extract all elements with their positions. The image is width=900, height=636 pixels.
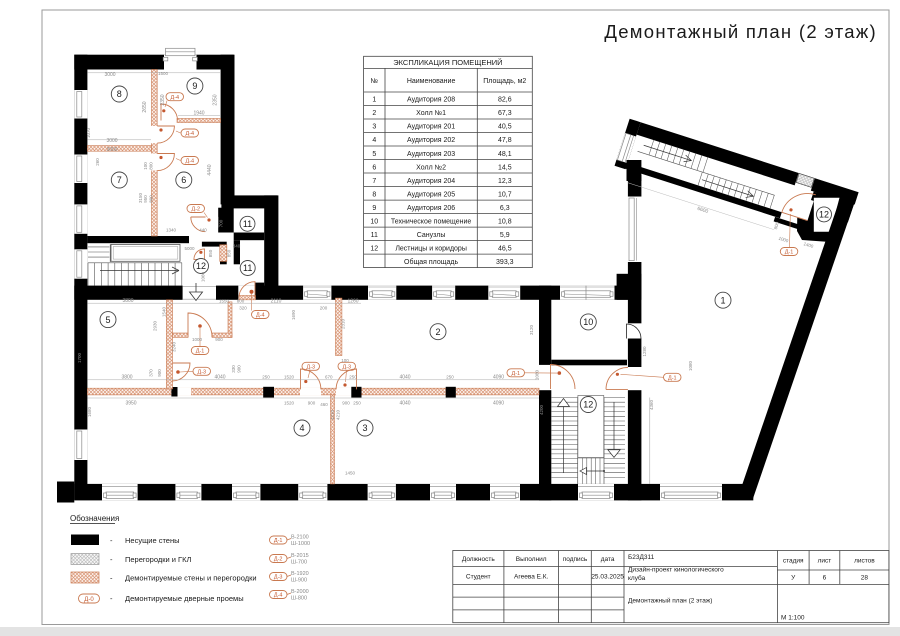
svg-text:250: 250	[446, 374, 454, 379]
svg-text:Наименование: Наименование	[407, 78, 456, 85]
svg-text:440: 440	[199, 228, 207, 233]
svg-text:М 1:100: М 1:100	[781, 615, 805, 622]
svg-text:12: 12	[819, 210, 829, 220]
svg-text:82,6: 82,6	[498, 97, 512, 104]
svg-text:2930: 2930	[153, 320, 158, 331]
svg-text:Д-3: Д-3	[197, 370, 206, 376]
svg-text:46,5: 46,5	[498, 245, 512, 252]
svg-text:4210: 4210	[330, 409, 335, 420]
svg-text:900: 900	[157, 369, 162, 377]
svg-text:3000: 3000	[106, 138, 117, 144]
svg-text:4090: 4090	[493, 374, 504, 380]
svg-text:7: 7	[372, 178, 376, 185]
svg-text:47,8: 47,8	[498, 137, 512, 144]
svg-text:250: 250	[262, 374, 270, 379]
svg-text:2310: 2310	[341, 318, 346, 329]
svg-text:5000: 5000	[185, 246, 196, 251]
svg-text:1940: 1940	[193, 111, 204, 117]
svg-text:28: 28	[861, 575, 869, 582]
svg-text:Д-3: Д-3	[306, 365, 315, 371]
svg-text:1340: 1340	[166, 228, 177, 233]
svg-text:4360: 4360	[649, 399, 654, 410]
svg-text:Аудитория 201: Аудитория 201	[407, 124, 455, 131]
svg-text:6,3: 6,3	[500, 205, 510, 212]
svg-text:В-2000: В-2000	[291, 589, 309, 595]
svg-text:стадия: стадия	[783, 558, 804, 565]
svg-text:250: 250	[353, 401, 361, 406]
svg-text:2110: 2110	[271, 299, 282, 305]
svg-text:9: 9	[192, 81, 197, 91]
svg-text:Агеева Е.К.: Агеева Е.К.	[514, 574, 549, 581]
svg-text:1080: 1080	[535, 369, 540, 380]
svg-text:3800: 3800	[122, 298, 133, 304]
svg-text:Холл №1: Холл №1	[416, 110, 446, 117]
svg-text:1540: 1540	[162, 306, 167, 317]
svg-text:12: 12	[583, 400, 593, 410]
svg-text:10,8: 10,8	[498, 218, 512, 225]
svg-text:2650: 2650	[142, 101, 148, 112]
svg-text:5,9: 5,9	[500, 232, 510, 239]
svg-text:370: 370	[149, 369, 154, 377]
svg-text:Лестницы и коридоры: Лестницы и коридоры	[395, 245, 467, 252]
svg-text:Демонтажный план (2 этаж): Демонтажный план (2 этаж)	[628, 597, 712, 605]
svg-text:Д-4: Д-4	[185, 159, 194, 165]
svg-text:Б23Д311: Б23Д311	[628, 554, 655, 561]
svg-text:260: 260	[95, 158, 100, 166]
svg-text:2350: 2350	[213, 94, 219, 105]
svg-text:Д-0: Д-0	[84, 597, 94, 603]
svg-text:6: 6	[181, 175, 186, 185]
svg-text:2: 2	[435, 327, 440, 337]
svg-text:12: 12	[196, 261, 206, 271]
svg-text:1520: 1520	[284, 401, 295, 406]
svg-text:700: 700	[219, 219, 224, 227]
svg-text:320: 320	[239, 306, 247, 311]
svg-text:Ш-900: Ш-900	[291, 578, 307, 584]
svg-text:4040: 4040	[214, 374, 225, 380]
svg-text:Д-1: Д-1	[511, 371, 520, 377]
svg-text:3240: 3240	[172, 341, 177, 352]
svg-text:В-2015: В-2015	[291, 553, 309, 559]
svg-text:800: 800	[149, 195, 154, 203]
svg-text:3120: 3120	[529, 324, 534, 335]
svg-text:ЭКСПЛИКАЦИЯ ПОМЕЩЕНИЙ: ЭКСПЛИКАЦИЯ ПОМЕЩЕНИЙ	[393, 58, 502, 67]
svg-text:Перегородки и ГКЛ: Перегородки и ГКЛ	[125, 555, 191, 564]
svg-text:№: №	[371, 78, 379, 85]
svg-text:4: 4	[372, 137, 376, 144]
svg-text:9: 9	[372, 205, 376, 212]
svg-text:1080: 1080	[688, 360, 693, 371]
svg-text:11: 11	[371, 232, 378, 239]
svg-text:Выполнил: Выполнил	[516, 556, 547, 563]
svg-text:4040: 4040	[399, 374, 410, 380]
svg-text:Холл №2: Холл №2	[416, 164, 446, 171]
svg-text:Д-2: Д-2	[274, 557, 283, 563]
svg-text:900: 900	[308, 401, 316, 406]
svg-text:лист: лист	[818, 558, 832, 565]
svg-text:900: 900	[342, 401, 350, 406]
svg-text:4440: 4440	[207, 164, 213, 175]
svg-text:10: 10	[370, 218, 378, 225]
svg-text:250: 250	[349, 374, 357, 379]
svg-text:8: 8	[117, 89, 122, 99]
svg-text:100: 100	[143, 162, 148, 170]
svg-text:3950: 3950	[125, 401, 136, 407]
svg-text:Техническое помещение: Техническое помещение	[391, 218, 472, 225]
svg-text:5: 5	[105, 315, 110, 325]
svg-text:12: 12	[370, 245, 378, 252]
svg-text:Д-2: Д-2	[191, 207, 200, 213]
svg-text:670: 670	[325, 374, 333, 379]
svg-text:Д-3: Д-3	[342, 365, 351, 371]
svg-text:1450: 1450	[345, 471, 356, 476]
svg-text:Д-1: Д-1	[196, 349, 205, 355]
svg-text:4200: 4200	[539, 404, 544, 415]
svg-text:Д-1: Д-1	[668, 376, 677, 382]
svg-text:Аудитория 206: Аудитория 206	[407, 205, 455, 212]
svg-text:340: 340	[233, 244, 241, 249]
svg-text:3000: 3000	[106, 147, 117, 153]
svg-text:Аудитория 204: Аудитория 204	[407, 178, 455, 185]
svg-text:1700: 1700	[77, 352, 82, 363]
svg-text:2350: 2350	[160, 94, 166, 105]
svg-text:Дизайн-проект кинологического: Дизайн-проект кинологического	[628, 566, 724, 574]
svg-text:Д-4: Д-4	[256, 313, 265, 319]
svg-text:Обозначения: Обозначения	[70, 514, 119, 523]
svg-text:Д-1: Д-1	[274, 538, 283, 544]
svg-text:330: 330	[231, 365, 236, 373]
svg-text:40,5: 40,5	[498, 124, 512, 131]
svg-text:800: 800	[237, 299, 245, 304]
svg-text:25.03.2025: 25.03.2025	[591, 574, 624, 581]
svg-text:Несущие стены: Несущие стены	[125, 536, 180, 545]
svg-text:1680: 1680	[87, 406, 92, 417]
svg-text:1: 1	[720, 295, 725, 305]
svg-text:1500: 1500	[158, 71, 169, 76]
svg-text:6: 6	[372, 164, 376, 171]
svg-text:В-2100: В-2100	[291, 535, 309, 541]
svg-text:4090: 4090	[493, 401, 504, 407]
svg-text:подпись: подпись	[563, 556, 588, 563]
svg-text:клуба: клуба	[628, 574, 646, 582]
svg-text:460: 460	[320, 402, 328, 407]
svg-text:5: 5	[372, 151, 376, 158]
svg-text:Д-4: Д-4	[185, 131, 194, 137]
svg-text:2: 2	[372, 110, 376, 117]
svg-text:Д-4: Д-4	[170, 95, 179, 101]
svg-text:67,3: 67,3	[498, 110, 512, 117]
svg-text:листов: листов	[854, 558, 875, 565]
svg-text:дата: дата	[601, 556, 615, 563]
svg-text:100: 100	[341, 358, 349, 363]
svg-text:393,3: 393,3	[496, 259, 514, 266]
svg-text:1060: 1060	[201, 271, 206, 282]
svg-text:Демонтажный план (2 этаж): Демонтажный план (2 этаж)	[604, 21, 877, 42]
svg-text:Общая площадь: Общая площадь	[404, 258, 458, 266]
svg-text:Аудитория 203: Аудитория 203	[407, 151, 455, 158]
svg-text:3800: 3800	[121, 374, 132, 380]
svg-text:Аудитория 208: Аудитория 208	[407, 97, 455, 104]
svg-text:950: 950	[143, 195, 148, 203]
svg-text:Д-4: Д-4	[274, 593, 283, 599]
svg-text:1: 1	[372, 97, 376, 104]
svg-text:Ш-1000: Ш-1000	[291, 541, 310, 547]
svg-text:Студент: Студент	[466, 574, 491, 581]
svg-text:48,1: 48,1	[498, 151, 512, 158]
svg-text:Ш-800: Ш-800	[291, 596, 307, 602]
svg-text:900: 900	[215, 337, 223, 342]
svg-text:1280: 1280	[642, 346, 647, 357]
svg-text:1260: 1260	[347, 299, 358, 305]
svg-text:800: 800	[149, 162, 154, 170]
svg-text:Должность: Должность	[462, 556, 496, 563]
svg-text:3: 3	[372, 124, 376, 131]
svg-text:4: 4	[299, 423, 304, 433]
svg-text:Ш-700: Ш-700	[291, 560, 307, 566]
svg-text:Демонтируемые стены и перегоро: Демонтируемые стены и перегородки	[125, 574, 257, 583]
svg-text:Д-3: Д-3	[274, 575, 283, 581]
svg-text:Аудитория 202: Аудитория 202	[407, 137, 455, 144]
svg-text:3000: 3000	[104, 72, 115, 78]
svg-text:14,5: 14,5	[498, 164, 512, 171]
svg-text:Д-1: Д-1	[785, 250, 794, 256]
svg-text:200: 200	[320, 306, 328, 311]
svg-text:Аудитория 205: Аудитория 205	[407, 191, 455, 198]
svg-text:11: 11	[243, 263, 252, 273]
svg-text:1550: 1550	[219, 299, 230, 304]
svg-text:1520: 1520	[284, 374, 295, 379]
svg-text:850: 850	[208, 249, 213, 257]
svg-text:6: 6	[823, 575, 827, 582]
svg-text:12,3: 12,3	[498, 178, 512, 185]
svg-text:850: 850	[227, 249, 232, 257]
svg-text:В-1920: В-1920	[291, 571, 309, 577]
svg-text:1690: 1690	[291, 309, 296, 320]
svg-text:10: 10	[583, 317, 593, 327]
svg-text:7: 7	[117, 175, 122, 185]
svg-text:4040: 4040	[399, 401, 410, 407]
svg-text:900: 900	[236, 365, 241, 373]
svg-text:Демонтируемые дверные проемы: Демонтируемые дверные проемы	[125, 594, 244, 603]
svg-text:3: 3	[362, 423, 367, 433]
svg-text:1000: 1000	[192, 337, 203, 342]
svg-text:10,7: 10,7	[498, 191, 512, 198]
svg-text:4210: 4210	[336, 409, 341, 420]
svg-text:Площадь, м2: Площадь, м2	[483, 78, 526, 85]
svg-text:1070: 1070	[86, 127, 91, 138]
svg-text:11: 11	[243, 219, 252, 229]
svg-text:Санузлы: Санузлы	[417, 232, 446, 239]
svg-text:8: 8	[372, 191, 376, 198]
